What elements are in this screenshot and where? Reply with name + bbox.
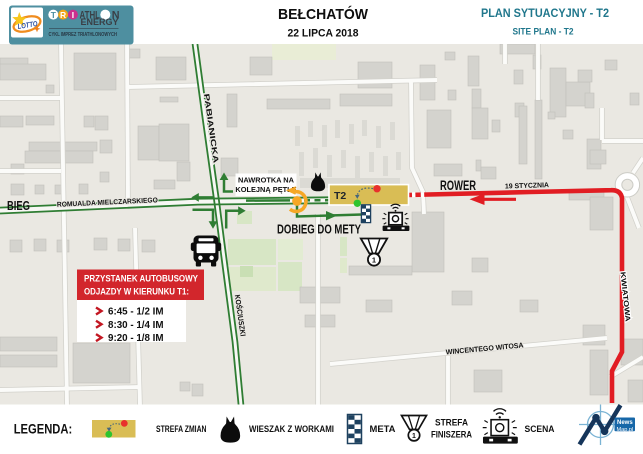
svg-text:PLAN SYTUACYJNY - T2: PLAN SYTUACYJNY - T2 — [481, 6, 609, 20]
svg-text:R: R — [60, 10, 66, 20]
svg-text:META: META — [370, 424, 397, 434]
svg-text:22 LIPCA 2018: 22 LIPCA 2018 — [288, 28, 359, 40]
svg-text:BEŁCHATÓW: BEŁCHATÓW — [278, 5, 368, 23]
svg-text:Map.pl: Map.pl — [617, 427, 634, 433]
svg-text:ODJAZDY W KIERUNKU T1:: ODJAZDY W KIERUNKU T1: — [84, 287, 189, 297]
svg-text:CYKL IMPREZ TRIATHLONOWYCH: CYKL IMPREZ TRIATHLONOWYCH — [49, 32, 118, 38]
svg-text:ROWER: ROWER — [440, 178, 476, 193]
svg-text:FINISZERA: FINISZERA — [431, 430, 472, 440]
svg-text:News: News — [617, 420, 633, 426]
svg-text:19 STYCZNIA: 19 STYCZNIA — [505, 182, 549, 190]
svg-text:WIESZAK Z WORKAMI: WIESZAK Z WORKAMI — [249, 424, 334, 434]
svg-text:9:20 - 1/8 IM: 9:20 - 1/8 IM — [108, 333, 164, 344]
svg-text:1: 1 — [372, 256, 376, 265]
svg-text:STREFA: STREFA — [435, 418, 468, 428]
svg-text:6:45 - 1/2 IM: 6:45 - 1/2 IM — [108, 307, 164, 318]
svg-text:PRZYSTANEK AUTOBUSOWY: PRZYSTANEK AUTOBUSOWY — [84, 274, 198, 284]
svg-text:STREFA ZMIAN: STREFA ZMIAN — [156, 424, 207, 434]
svg-text:KOLEJNĄ PĘTLĘ: KOLEJNĄ PĘTLĘ — [235, 185, 296, 194]
svg-text:SCENA: SCENA — [525, 424, 555, 434]
svg-text:T: T — [51, 10, 57, 20]
svg-text:8:30 - 1/4 IM: 8:30 - 1/4 IM — [108, 320, 164, 331]
svg-text:DOBIEG DO METY: DOBIEG DO METY — [277, 222, 361, 237]
svg-text:LEGENDA:: LEGENDA: — [14, 422, 72, 437]
svg-text:1: 1 — [412, 433, 416, 440]
svg-text:ENERGY: ENERGY — [81, 17, 119, 27]
svg-text:BIEG: BIEG — [7, 198, 30, 213]
svg-text:NAWROTKA NA: NAWROTKA NA — [238, 176, 295, 185]
svg-text:T2: T2 — [334, 190, 346, 202]
svg-text:SITE PLAN - T2: SITE PLAN - T2 — [513, 27, 574, 38]
svg-text:I: I — [72, 10, 74, 20]
